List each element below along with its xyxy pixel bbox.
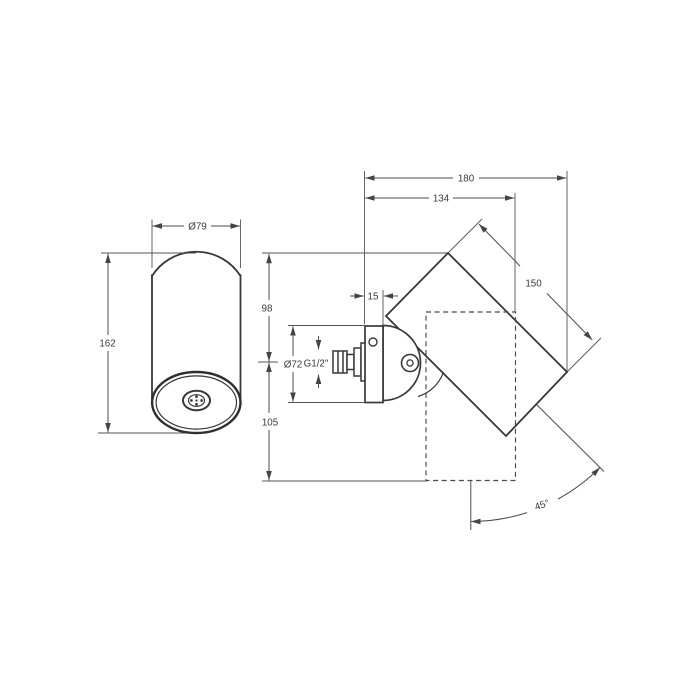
technical-drawing: Ø79 162 180 134 150 15 98 105 Ø72 G1/2" … <box>0 0 700 700</box>
ball-outline-arc <box>418 372 444 397</box>
cylinder-top-dome <box>152 252 241 276</box>
dim-label-diameter-79: Ø79 <box>188 222 207 233</box>
nozzle-center-dot <box>195 399 197 401</box>
dim-label-180: 180 <box>458 174 475 185</box>
nozzle-dot <box>190 399 192 401</box>
nozzle-dot <box>200 399 202 401</box>
dim-label-height-162: 162 <box>99 339 115 350</box>
dim-label-15: 15 <box>368 292 379 303</box>
dim-label-diameter-72: Ø72 <box>284 360 303 371</box>
angle-arc <box>558 468 600 500</box>
thread-stub <box>333 351 347 373</box>
bottom-rim-outer <box>152 372 240 433</box>
angle-arc <box>471 513 527 522</box>
bottom-rim-inner <box>156 376 236 429</box>
spray-face <box>183 391 210 411</box>
dim-label-98: 98 <box>262 304 273 315</box>
dim-label-angle-45: 45° <box>533 498 551 513</box>
dim-label-105: 105 <box>262 418 279 429</box>
dim-label-thread-g12: G1/2" <box>304 359 329 370</box>
front-view <box>98 220 241 434</box>
connector-neck <box>347 355 354 370</box>
dim-label-134: 134 <box>433 194 450 205</box>
nozzle-dot <box>195 396 197 398</box>
dim-label-150: 150 <box>525 279 542 290</box>
connector-nut <box>354 348 361 376</box>
side-view <box>258 171 604 530</box>
front-view-cylinder <box>152 252 241 433</box>
thread-connector <box>333 343 366 381</box>
front-view-dimensions <box>98 220 241 434</box>
nozzle-dot <box>195 403 197 405</box>
drawing-canvas: Ø79 162 180 134 150 15 98 105 Ø72 G1/2" … <box>0 0 700 700</box>
